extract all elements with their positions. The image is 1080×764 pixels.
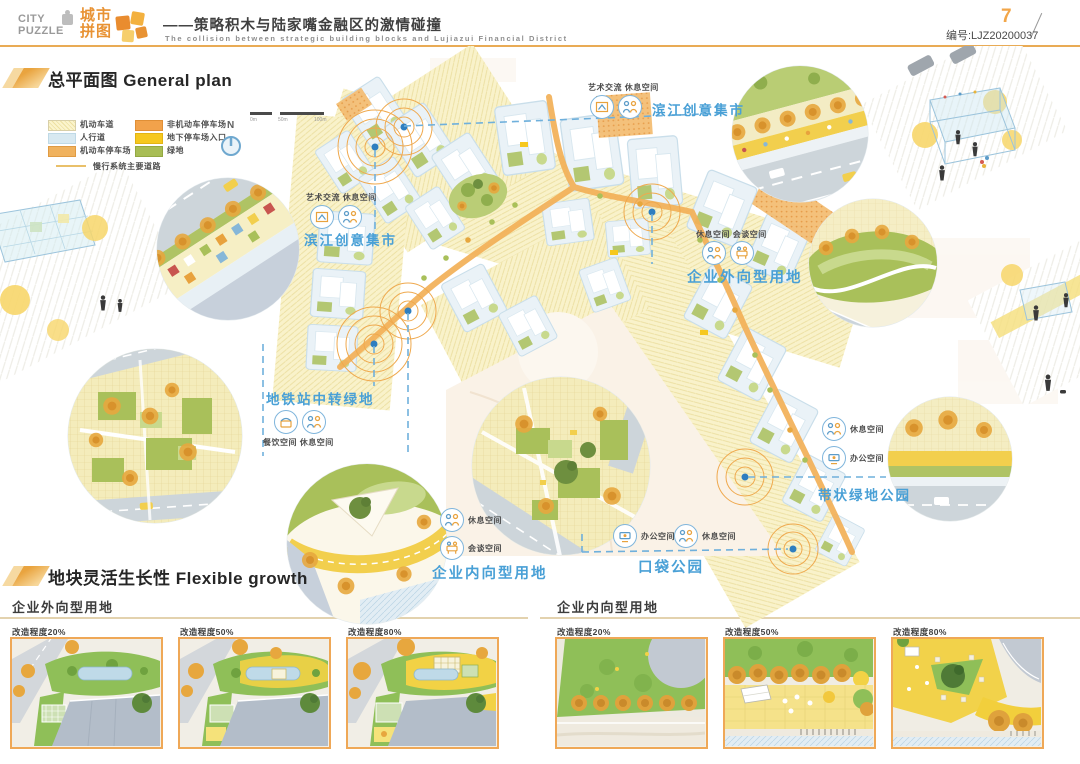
callout-label-small: 艺术交流 休息空间 [588, 82, 659, 93]
legend-label: 机动车道 [80, 119, 114, 130]
logo-en-line1: CITY [18, 13, 64, 25]
callout-label-item: 休息空间 [468, 515, 502, 526]
vignette-pavilion-topright [861, 46, 1067, 211]
callout-belt-park-street [886, 395, 1016, 526]
dining-space-icon [274, 410, 298, 434]
legend-swatch-sidewalk [48, 133, 76, 144]
callout-label-main: 企业外向型用地 [687, 266, 803, 287]
growth-image-outward-80 [346, 637, 499, 749]
legend-swatch-greenspace [135, 146, 163, 157]
callout-label-item: 会谈空间 [468, 543, 502, 554]
inward-column-heading: 企业内向型用地 [557, 597, 659, 616]
plan-section-title: 总平面图 General plan [48, 66, 232, 91]
callout-pocket-park [285, 462, 451, 628]
art-exchange-icon [590, 95, 614, 119]
puzzle-pieces-icon [116, 12, 152, 44]
rest-space-icon [302, 410, 326, 434]
north-label: N [227, 120, 234, 131]
callout-label-main: 滨江创意集市 [304, 229, 397, 249]
art-exchange-icon [310, 205, 334, 229]
logo-en-line2: PUZZLE [18, 25, 64, 37]
rest-space-icon [822, 417, 846, 441]
growth-image-outward-20 [10, 637, 163, 749]
doc-code: 编号:LJZ20200037 [946, 27, 1038, 43]
scale-bar: 0m 50m 100m [250, 108, 330, 124]
legend-label: 机动车停车场 [80, 145, 131, 156]
growth-section-title: 地块灵活生长性 Flexible growth [48, 564, 308, 589]
growth-image-inward-80 [891, 637, 1044, 749]
scale-label: 100m [314, 117, 327, 123]
callout-label-main: 企业内向型用地 [432, 562, 548, 583]
header-title-cn: ——策略积木与陆家嘴金融区的激情碰撞 [163, 14, 442, 35]
legend-swatch-bike-parking [135, 120, 163, 131]
callout-label-item: 办公空间 [850, 453, 884, 464]
logo-cn-line1: 城市 [80, 8, 112, 24]
legend-label: 慢行系统主要道路 [93, 161, 161, 172]
legend-swatch-underground-entry [135, 133, 163, 144]
legend-label: 非机动车停车场 [167, 119, 227, 130]
page-number: 7 [1001, 6, 1012, 28]
callout-label-item: 办公空间 [641, 531, 675, 542]
meeting-space-icon [440, 536, 464, 560]
logo-city-puzzle: CITY PUZZLE [18, 13, 64, 37]
puzzle-piece-icon-gray [62, 14, 73, 25]
logo-cn: 城市 拼图 [80, 8, 112, 40]
callout-label-main: 滨江创意集市 [652, 99, 745, 119]
office-space-icon [822, 446, 846, 470]
callout-label-main: 口袋公园 [638, 556, 704, 577]
office-space-icon [613, 524, 637, 548]
callout-label-item: 休息空间 [850, 424, 884, 435]
meeting-space-icon [730, 241, 754, 265]
growth-image-inward-50 [723, 637, 876, 749]
poster-page: CITY PUZZLE 城市 拼图 ——策略积木与陆家嘴金融区的激情碰撞 The… [0, 0, 1080, 764]
rest-space-icon [674, 524, 698, 548]
legend-swatch-motorway [48, 120, 76, 131]
legend-label: 绿地 [167, 145, 184, 156]
scale-label: 0m [250, 117, 257, 123]
callout-label-main: 带状绿地公园 [818, 484, 911, 504]
callout-label-item: 休息空间 [702, 531, 736, 542]
growth-image-outward-50 [178, 637, 331, 749]
rest-space-icon [440, 508, 464, 532]
callout-label-main: 地铁站中转绿地 [266, 388, 375, 408]
rest-space-icon [338, 205, 362, 229]
legend-swatch-parking [48, 146, 76, 157]
rest-space-icon [702, 241, 726, 265]
outward-column-heading: 企业外向型用地 [12, 597, 114, 616]
growth-image-inward-20 [555, 637, 708, 749]
scale-label: 50m [278, 117, 288, 123]
legend-swatch-slow-route [56, 165, 86, 167]
callout-label-small: 休息空间 会谈空间 [696, 229, 767, 240]
legend-label: 人行道 [80, 132, 106, 143]
rest-space-icon [618, 95, 642, 119]
compass-icon [218, 133, 244, 159]
header-title-en: The collision between strategic building… [165, 34, 568, 43]
callout-label-small: 艺术交流 休息空间 [306, 192, 377, 203]
callout-label-small: 餐饮空间 休息空间 [263, 437, 334, 448]
logo-cn-line2: 拼图 [80, 24, 112, 40]
